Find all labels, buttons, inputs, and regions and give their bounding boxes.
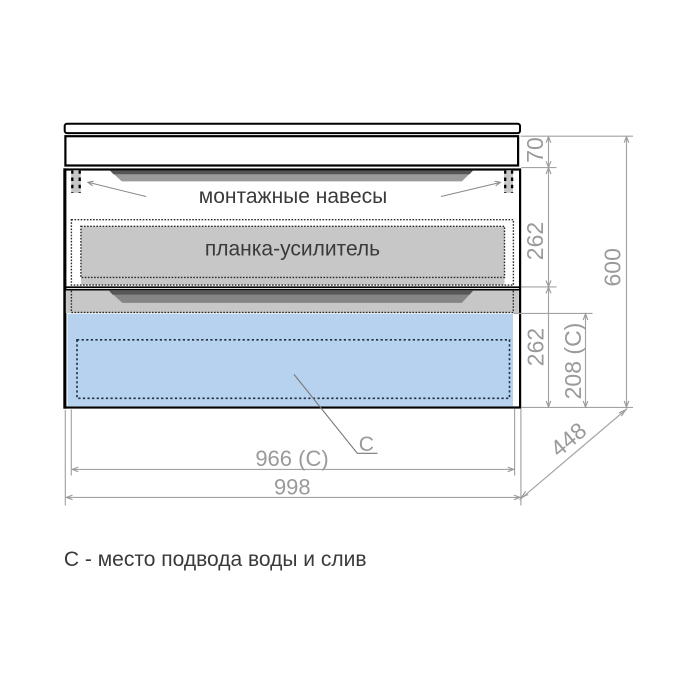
svg-text:998: 998 [274,474,311,499]
svg-text:600: 600 [600,248,626,286]
svg-text:С - место подвода воды и слив: С - место подвода воды и слив [64,548,367,571]
svg-text:262: 262 [522,222,548,260]
svg-text:262: 262 [523,328,549,366]
svg-text:планка-усилитель: планка-усилитель [205,238,380,261]
svg-text:208 (С): 208 (С) [560,323,586,400]
svg-text:966 (С): 966 (С) [255,446,328,471]
svg-text:монтажные навесы: монтажные навесы [199,185,388,208]
svg-text:C: C [359,433,374,456]
svg-text:70: 70 [522,137,548,163]
